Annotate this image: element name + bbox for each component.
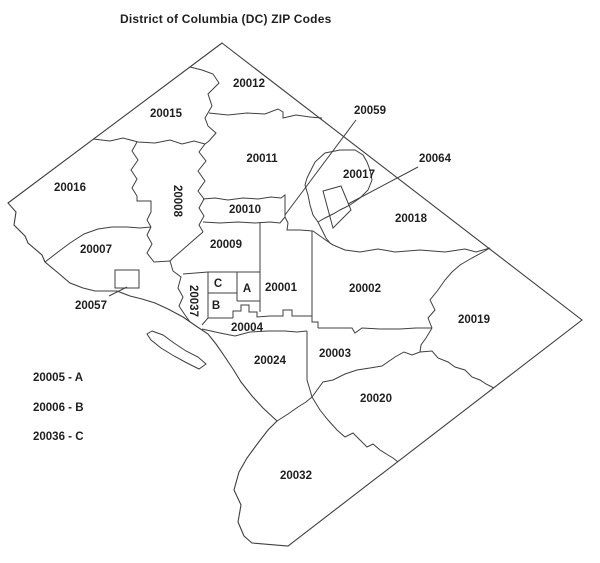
- zone-letter-A: A: [243, 283, 251, 295]
- zip-region-boundary: [233, 305, 312, 318]
- zip-label-20008: 20008: [171, 185, 183, 218]
- zip-label-20024: 20024: [254, 355, 287, 367]
- zip-label-20012: 20012: [233, 78, 265, 90]
- potomac-island-shape: [147, 331, 206, 369]
- zip-label-20019: 20019: [458, 314, 490, 326]
- zip-region-boundary: [285, 217, 313, 231]
- zip-region-boundary: [318, 328, 432, 333]
- zip-label-20017: 20017: [343, 169, 375, 181]
- zip-label-20007: 20007: [80, 244, 112, 256]
- zip-region-boundary: [312, 397, 398, 462]
- zip-label-20057: 20057: [75, 300, 107, 312]
- zip-label-20015: 20015: [150, 108, 183, 120]
- legend-item-20005: 20005 - A: [33, 372, 84, 384]
- leader-line-20059: [285, 120, 356, 215]
- zip-region-boundary: [307, 331, 312, 397]
- zip-label-20004: 20004: [231, 322, 264, 334]
- zip-label-20020: 20020: [360, 393, 392, 405]
- zip-region-boundary: [203, 217, 285, 223]
- legend-item-20006: 20006 - B: [33, 402, 84, 414]
- zip-label-20010: 20010: [229, 204, 261, 216]
- zip-region-boundary: [93, 138, 205, 144]
- zip-label-20037: 20037: [187, 285, 199, 317]
- zip-label-20016: 20016: [54, 182, 86, 194]
- zip-label-20002: 20002: [349, 283, 381, 295]
- zone-letter-C: C: [214, 278, 222, 290]
- zip-label-20064: 20064: [419, 153, 452, 165]
- zip-region-boundary: [115, 270, 139, 288]
- zip-label-20018: 20018: [395, 213, 428, 225]
- dc-zip-map-page: District of Columbia (DC) ZIP Codes 2001…: [0, 0, 600, 563]
- zip-region-boundary: [420, 328, 432, 352]
- zip-region-boundary: [420, 351, 494, 388]
- zone-letter-B: B: [212, 300, 220, 312]
- zone-legend: 20005 - A 20006 - B 20036 - C: [33, 372, 84, 461]
- zip-region-boundary: [318, 222, 333, 245]
- zip-region-boundary: [147, 227, 190, 322]
- zip-region-boundary: [131, 142, 151, 227]
- zip-region-boundary: [183, 272, 260, 274]
- zip-label-20003: 20003: [319, 348, 351, 360]
- dc-zip-map-canvas: 2001220015200592001120017200642001620008…: [0, 0, 600, 563]
- zip-label-20009: 20009: [210, 239, 242, 251]
- zip-region-boundary: [190, 67, 219, 232]
- zip-label-20059: 20059: [354, 105, 386, 117]
- zip-label-20011: 20011: [246, 153, 278, 165]
- zip-label-20032: 20032: [280, 470, 312, 482]
- zip-region-boundary: [333, 245, 490, 252]
- zip-region-boundary: [170, 232, 203, 261]
- zip-region-boundary: [305, 150, 372, 222]
- zip-region-boundary: [209, 109, 322, 118]
- zip-region-boundary: [202, 272, 208, 325]
- zip-region-boundary: [277, 397, 312, 421]
- legend-item-20036: 20036 - C: [33, 431, 84, 443]
- zip-region-boundary: [312, 231, 318, 328]
- zip-label-20001: 20001: [265, 282, 298, 294]
